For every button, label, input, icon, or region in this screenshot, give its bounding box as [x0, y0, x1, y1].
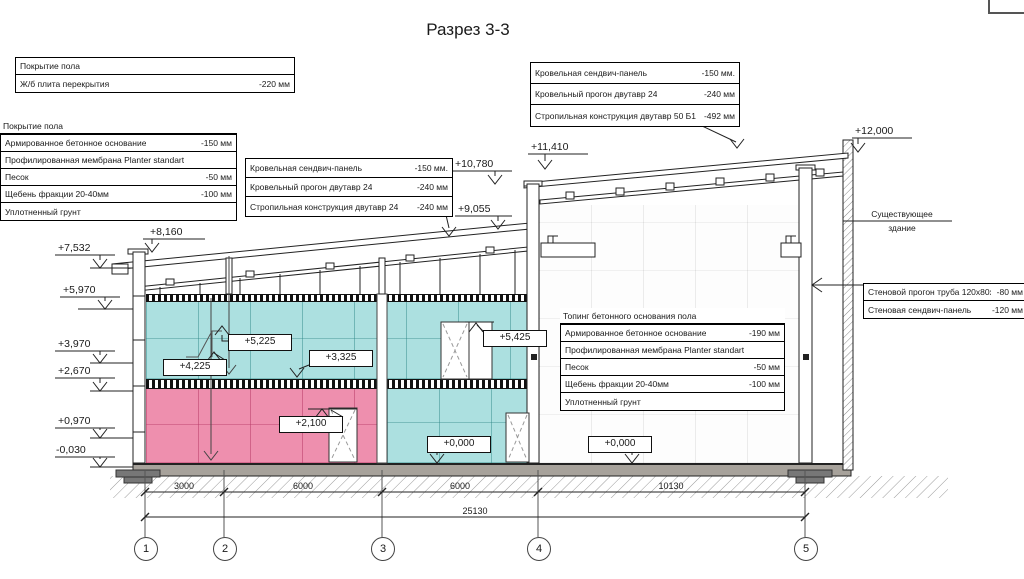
- section-drawing-sheet: Разрез 3-3 Покрытие пола Ж/б плита перек…: [0, 0, 1024, 579]
- sheet-corner-mark: [988, 0, 1024, 14]
- existing-building-label-2: здание: [862, 223, 942, 233]
- footing-right: [788, 470, 832, 477]
- axis-bubble-1: 1: [134, 537, 158, 561]
- elevation-8160: +8,160: [150, 226, 182, 238]
- elevation-5225: +5,225: [228, 334, 292, 351]
- elevation-0000-right: +0,000: [588, 436, 652, 453]
- callout-roof-right: Кровельная сендвич-панель-150 мм. Кровел…: [530, 62, 740, 127]
- elevation-0970: +0,970: [58, 415, 90, 427]
- axis-bubble-4: 4: [527, 537, 551, 561]
- callout-floor-slab: Покрытие пола Ж/б плита перекрытия-220 м…: [15, 57, 295, 93]
- wall-axis-1: [133, 252, 145, 463]
- callout-roof-left: Кровельная сендвич-панель-150 мм. Кровел…: [245, 158, 453, 217]
- elevation-9055: +9,055: [458, 203, 490, 215]
- callout-wall-right: Стеновой прогон труба 120х80х3-80 мм Сте…: [863, 283, 1024, 319]
- callout-ground-floor-right: Топинг бетонного основания пола Армирова…: [560, 308, 785, 411]
- elevation-minus-0030: -0,030: [56, 444, 86, 456]
- bracket-axis-4: [541, 243, 595, 257]
- elevation-10780: +10,780: [455, 158, 493, 170]
- dim-axis1-2: 3000: [174, 481, 194, 491]
- elevation-3325: +3,325: [309, 350, 373, 367]
- elevation-0000-left: +0,000: [427, 436, 491, 453]
- rafter-right: [540, 172, 843, 204]
- dim-total: 25130: [462, 506, 487, 516]
- dim-axis4-5: 10130: [658, 481, 683, 491]
- elevation-5970: +5,970: [63, 284, 95, 296]
- elevation-12000: +12,000: [855, 125, 893, 137]
- bracket-axis-5: [781, 243, 801, 257]
- wall-axis-5: [799, 168, 812, 463]
- dim-axis3-4: 6000: [450, 481, 470, 491]
- elevation-3970: +3,970: [58, 338, 90, 350]
- elevation-7532: +7,532: [58, 242, 90, 254]
- elevation-2100: +2,100: [279, 416, 343, 433]
- elevation-11410: +11,410: [531, 141, 568, 153]
- column-axis-3: [377, 294, 387, 463]
- elevation-5425: +5,425: [483, 330, 547, 347]
- footing-left: [116, 470, 160, 477]
- elevation-2670: +2,670: [58, 365, 90, 377]
- gutter-left: [112, 264, 128, 274]
- elevation-4225: +4,225: [163, 359, 227, 376]
- axis-bubble-5: 5: [794, 537, 818, 561]
- axis-bubble-2: 2: [213, 537, 237, 561]
- callout-ground-floor-left: Покрытие пола Армированное бетонное осно…: [0, 118, 237, 221]
- axis-bubble-3: 3: [371, 537, 395, 561]
- drawing-title: Разрез 3-3: [358, 20, 578, 40]
- existing-building-label-1: Существующее: [862, 209, 942, 219]
- dim-axis2-3: 6000: [293, 481, 313, 491]
- floor-slab: [133, 464, 851, 476]
